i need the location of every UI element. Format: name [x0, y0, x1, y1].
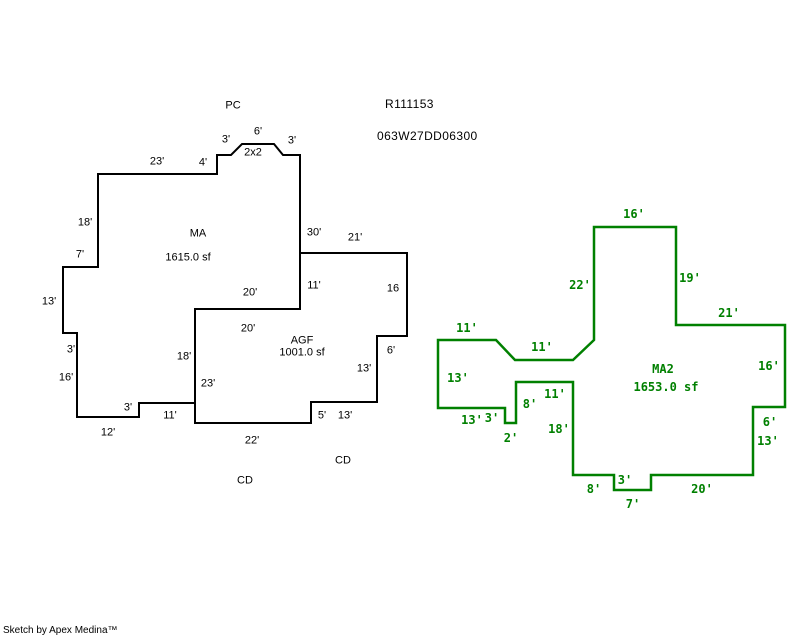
dimension-label: 18' [78, 218, 92, 229]
dimension-label: 3' [222, 135, 230, 146]
dimension-label: 3' [67, 345, 75, 356]
dimension-label: 20' [243, 288, 257, 299]
dimension-label: 16 [387, 284, 399, 295]
dimension-label: 20' [241, 324, 255, 335]
dimension-label: 11' [531, 341, 553, 353]
site-annotation-label: CD [335, 456, 351, 467]
dimension-label: 7' [76, 250, 84, 261]
dimension-label: 11' [544, 388, 566, 400]
site-annotation-label: PC [225, 101, 240, 112]
sketch-ref-2: 063W27DD06300 [377, 129, 478, 143]
sketch-ref-1: R111153 [385, 97, 434, 111]
polygon-ma [63, 144, 300, 417]
dimension-label: 8' [523, 398, 537, 410]
dimension-label: 13' [338, 411, 352, 422]
dimension-label: 13' [757, 435, 779, 447]
dimension-label: 11' [163, 411, 177, 422]
dimension-label: 20' [691, 483, 713, 495]
dimension-label: 13' [461, 414, 483, 426]
dimension-label: 12' [101, 428, 115, 439]
dimension-label: 2x2 [244, 148, 262, 159]
dimension-label: 3' [124, 403, 132, 414]
site-annotation-label: CD [237, 476, 253, 487]
dimension-label: 3' [618, 474, 632, 486]
dimension-label: 6' [763, 416, 777, 428]
sketch-canvas: MA1615.0 sf23'4'3'6'2x23'30'20'18'11'3'1… [0, 0, 800, 640]
polygon-area-label-ma: 1615.0 sf [165, 253, 210, 264]
dimension-label: 6' [387, 346, 395, 357]
sketch-svg [0, 0, 800, 640]
polygon-name-label-ma2: MA2 [652, 363, 674, 375]
dimension-label: 13' [357, 364, 371, 375]
dimension-label: 16' [59, 373, 73, 384]
dimension-label: 21' [718, 307, 740, 319]
dimension-label: 5' [318, 411, 326, 422]
dimension-label: 19' [679, 272, 701, 284]
dimension-label: 18' [177, 352, 191, 363]
polygon-area-label-agf: 1001.0 sf [279, 348, 324, 359]
dimension-label: 23' [150, 157, 164, 168]
dimension-label: 22' [569, 279, 591, 291]
dimension-label: 3' [288, 136, 296, 147]
dimension-label: 2' [504, 432, 518, 444]
dimension-label: 18' [548, 423, 570, 435]
dimension-label: 3' [485, 412, 499, 424]
dimension-label: 16' [623, 208, 645, 220]
dimension-label: 21' [348, 233, 362, 244]
polygon-name-label-ma: MA [190, 229, 207, 240]
dimension-label: 11' [456, 322, 478, 334]
dimension-label: 8' [587, 483, 601, 495]
dimension-label: 13' [447, 372, 469, 384]
polygon-area-label-ma2: 1653.0 sf [633, 381, 698, 393]
dimension-label: 7' [626, 498, 640, 510]
polygon-ma2 [438, 227, 785, 490]
dimension-label: 23' [201, 379, 215, 390]
dimension-label: 16' [758, 360, 780, 372]
dimension-label: 13' [42, 297, 56, 308]
dimension-label: 30' [307, 228, 321, 239]
dimension-label: 22' [245, 436, 259, 447]
dimension-label: 4' [199, 158, 207, 169]
credit-note: Sketch by Apex Medina™ [3, 625, 118, 636]
dimension-label: 6' [254, 127, 262, 138]
polygon-name-label-agf: AGF [291, 336, 314, 347]
dimension-label: 11' [307, 281, 321, 292]
